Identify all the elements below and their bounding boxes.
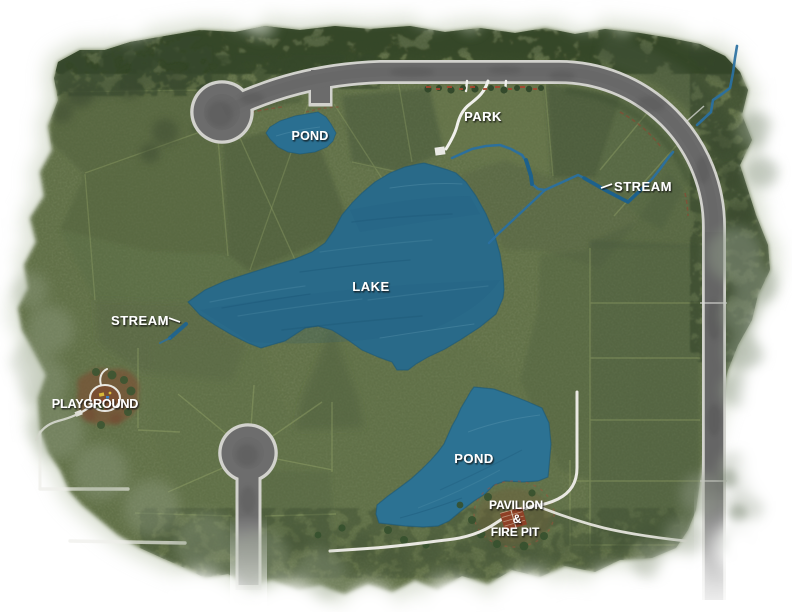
svg-text:POND: POND <box>454 451 494 466</box>
svg-text:PARK: PARK <box>464 109 502 124</box>
svg-text:PAVILION: PAVILION <box>489 498 543 512</box>
svg-text:PLAYGROUND: PLAYGROUND <box>52 397 139 411</box>
svg-text:STREAM: STREAM <box>111 313 169 328</box>
svg-text:POND: POND <box>292 129 329 143</box>
svg-text:LAKE: LAKE <box>352 279 389 294</box>
svg-text:FIRE PIT: FIRE PIT <box>491 525 540 539</box>
svg-text:STREAM: STREAM <box>614 179 672 194</box>
svg-text:&: & <box>513 512 522 526</box>
